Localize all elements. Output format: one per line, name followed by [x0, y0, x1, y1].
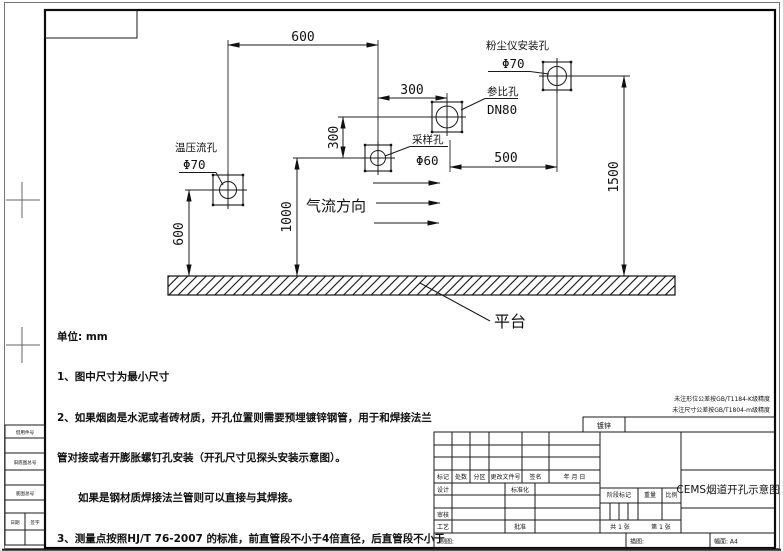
corner-block — [45, 10, 137, 38]
dim-top-600: 600 — [228, 30, 378, 172]
standardization-label: 标准化 — [511, 486, 529, 494]
svg-text:600: 600 — [172, 222, 187, 245]
label-sampling: 采样孔 Φ60 — [385, 133, 448, 168]
svg-text:600: 600 — [291, 30, 314, 45]
label-temp-pressure-flow: 温压流孔 Φ70 — [175, 141, 223, 185]
header-sign: 签名 — [529, 473, 541, 481]
margin-block3-label: 底图总号 — [16, 490, 35, 497]
sheet-no: 第 1 张 — [651, 523, 671, 531]
svg-text:500: 500 — [494, 151, 517, 166]
svg-text:300: 300 — [327, 126, 342, 149]
dim-mid-1000: 1000 — [280, 158, 297, 276]
svg-text:1500: 1500 — [607, 161, 622, 192]
margin-block2-label: 旧底图总号 — [14, 459, 37, 466]
hole-size: Φ60 — [416, 153, 439, 168]
svg-text:300: 300 — [400, 83, 423, 98]
hole-size: Φ70 — [183, 157, 206, 172]
hole-size: DN80 — [487, 102, 517, 117]
note-line: 1、图中尺寸为最小尺寸 — [57, 371, 447, 384]
dim-vert-300: 300 — [293, 117, 429, 158]
hole-sampling — [361, 141, 395, 175]
note-line: 2、如果烟囱是水泥或者砖材质，开孔位置则需要预埋镀锌钢管，用于和焊接法兰 — [57, 412, 447, 425]
margin-sign-label: 签字 — [30, 519, 40, 526]
left-margin-table: 借用件号 旧底图总号 底图总号 日期 签字 — [5, 425, 45, 545]
margin-block1-label: 借用件号 — [16, 429, 35, 436]
header-date: 年 月 日 — [564, 473, 586, 481]
approve-label: 批准 — [514, 523, 526, 531]
hole-reference — [428, 98, 466, 136]
dim-left-600: 600 — [172, 190, 210, 276]
weight-label: 重量 — [644, 491, 656, 499]
hole-temp-pressure-flow — [209, 171, 247, 209]
header-zone: 分区 — [473, 473, 485, 481]
note-line: 如果是钢材质焊接法兰管则可以直接与其焊接。 — [57, 492, 447, 505]
label-dust-meter: 粉尘仪安装孔 Φ70 — [486, 39, 549, 74]
notes-block: 单位: mm 1、图中尺寸为最小尺寸 2、如果烟囱是水泥或者砖材质，开孔位置则需… — [57, 304, 447, 551]
dim-horiz-300: 300 — [378, 83, 447, 102]
centering-marks — [6, 182, 40, 363]
sheet-total: 共 1 张 — [610, 523, 630, 531]
header-docno: 更改文件号 — [490, 473, 520, 481]
dim-right-1500: 1500 — [575, 76, 630, 276]
airflow-label: 气流方向 — [306, 197, 366, 215]
hole-size: Φ70 — [502, 56, 525, 71]
label-reference: 参比孔 DN80 — [461, 85, 519, 117]
stage-mark-label: 阶段标记 — [607, 491, 631, 499]
svg-text:未注形位公差按GB/T1184-K级精度: 未注形位公差按GB/T1184-K级精度 — [674, 395, 770, 403]
note-line: 管对接或者开膨胀螺钉孔安装（开孔尺寸见探头安装示意图）。 — [57, 452, 447, 465]
material-cell: 镀锌 — [597, 421, 611, 430]
drawing-sheet: 借用件号 旧底图总号 底图总号 日期 签字 — [0, 0, 783, 551]
airflow: 气流方向 — [306, 183, 440, 223]
hole-dust-meter — [539, 58, 575, 94]
note-line: 单位: mm — [57, 331, 447, 344]
hole-name: 采样孔 — [412, 133, 444, 146]
hole-name: 粉尘仪安装孔 — [486, 39, 549, 52]
tolerance-notes: 未注形位公差按GB/T1184-K级精度 未注尺寸公差按GB/T1804-m级精… — [672, 395, 770, 414]
format-label: 幅面: A4 — [714, 538, 738, 546]
margin-date-label: 日期 — [10, 520, 20, 526]
title-block: 镀锌 标记 处数 分区 更改文件号 签名 年 月 日 设计 标准化 审核 工艺 … — [434, 417, 780, 548]
platform-label: 平台 — [494, 312, 526, 331]
hole-name: 温压流孔 — [175, 141, 217, 154]
note-line: 3、测量点按照HJ/T 76-2007 的标准，前直管段不小于4倍直径，后直管段… — [57, 533, 447, 546]
svg-text:未注尺寸公差按GB/T1804-m级精度: 未注尺寸公差按GB/T1804-m级精度 — [672, 406, 770, 414]
hole-name: 参比孔 — [487, 85, 519, 98]
header-count: 处数 — [455, 473, 467, 481]
svg-text:1000: 1000 — [280, 201, 295, 232]
trace-label: 描图: — [630, 538, 644, 546]
drawing-title: CEMS烟道开孔示意图 — [676, 483, 779, 496]
